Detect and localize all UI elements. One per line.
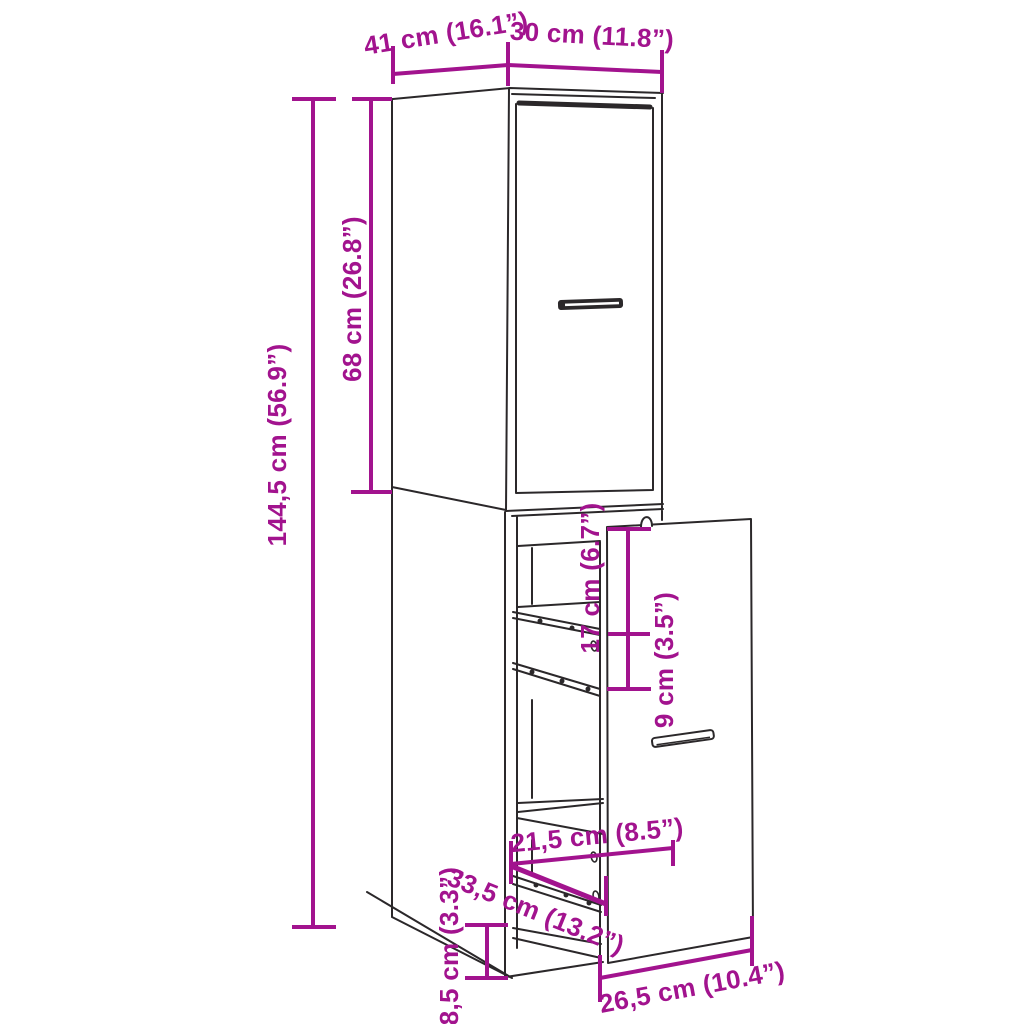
dim-depth-label: 41 cm (16.1”) — [362, 5, 530, 61]
screw-dot — [560, 679, 565, 684]
screw-dot — [586, 687, 591, 692]
dim-plinth-height-label: 8,5 cm (3.3”) — [434, 867, 464, 1024]
screw-dot — [534, 883, 539, 888]
dim-total-height: 144,5 cm (56.9”) — [262, 99, 336, 927]
pullout-front-panel — [590, 517, 753, 963]
screw-dot — [570, 626, 575, 631]
dim-depth-line — [393, 65, 508, 74]
upper-door — [516, 104, 653, 493]
screw-dot — [564, 893, 569, 898]
upper-door-top-gap — [519, 103, 650, 107]
dim-gap-upper-label: 17 cm (6.7”) — [575, 502, 605, 653]
drawer-slide-rails — [513, 612, 603, 912]
dim-total-height-label: 144,5 cm (56.9”) — [262, 344, 292, 547]
door-handle — [558, 298, 623, 310]
cabinet-dimension-diagram: 41 cm (16.1”) 30 cm (11.8”) 144,5 cm (56… — [0, 0, 1024, 1024]
dim-width: 30 cm (11.8”) — [508, 16, 675, 93]
dim-depth: 41 cm (16.1”) — [362, 5, 530, 86]
dim-upper-height-label: 68 cm (26.8”) — [337, 216, 367, 382]
dim-upper-height: 68 cm (26.8”) — [337, 99, 392, 492]
dim-width-line — [508, 65, 662, 72]
dim-panel-width-label: 26,5 cm (10.4”) — [597, 955, 787, 1019]
diagram-canvas: 41 cm (16.1”) 30 cm (11.8”) 144,5 cm (56… — [0, 0, 1024, 1024]
screw-dot — [530, 670, 535, 675]
dim-width-label: 30 cm (11.8”) — [509, 16, 675, 55]
screw-dot — [587, 901, 592, 906]
dim-gap-lower-label: 9 cm (3.5”) — [649, 592, 679, 728]
panel-hinge-bracket — [641, 517, 652, 527]
screw-dot — [538, 619, 543, 624]
